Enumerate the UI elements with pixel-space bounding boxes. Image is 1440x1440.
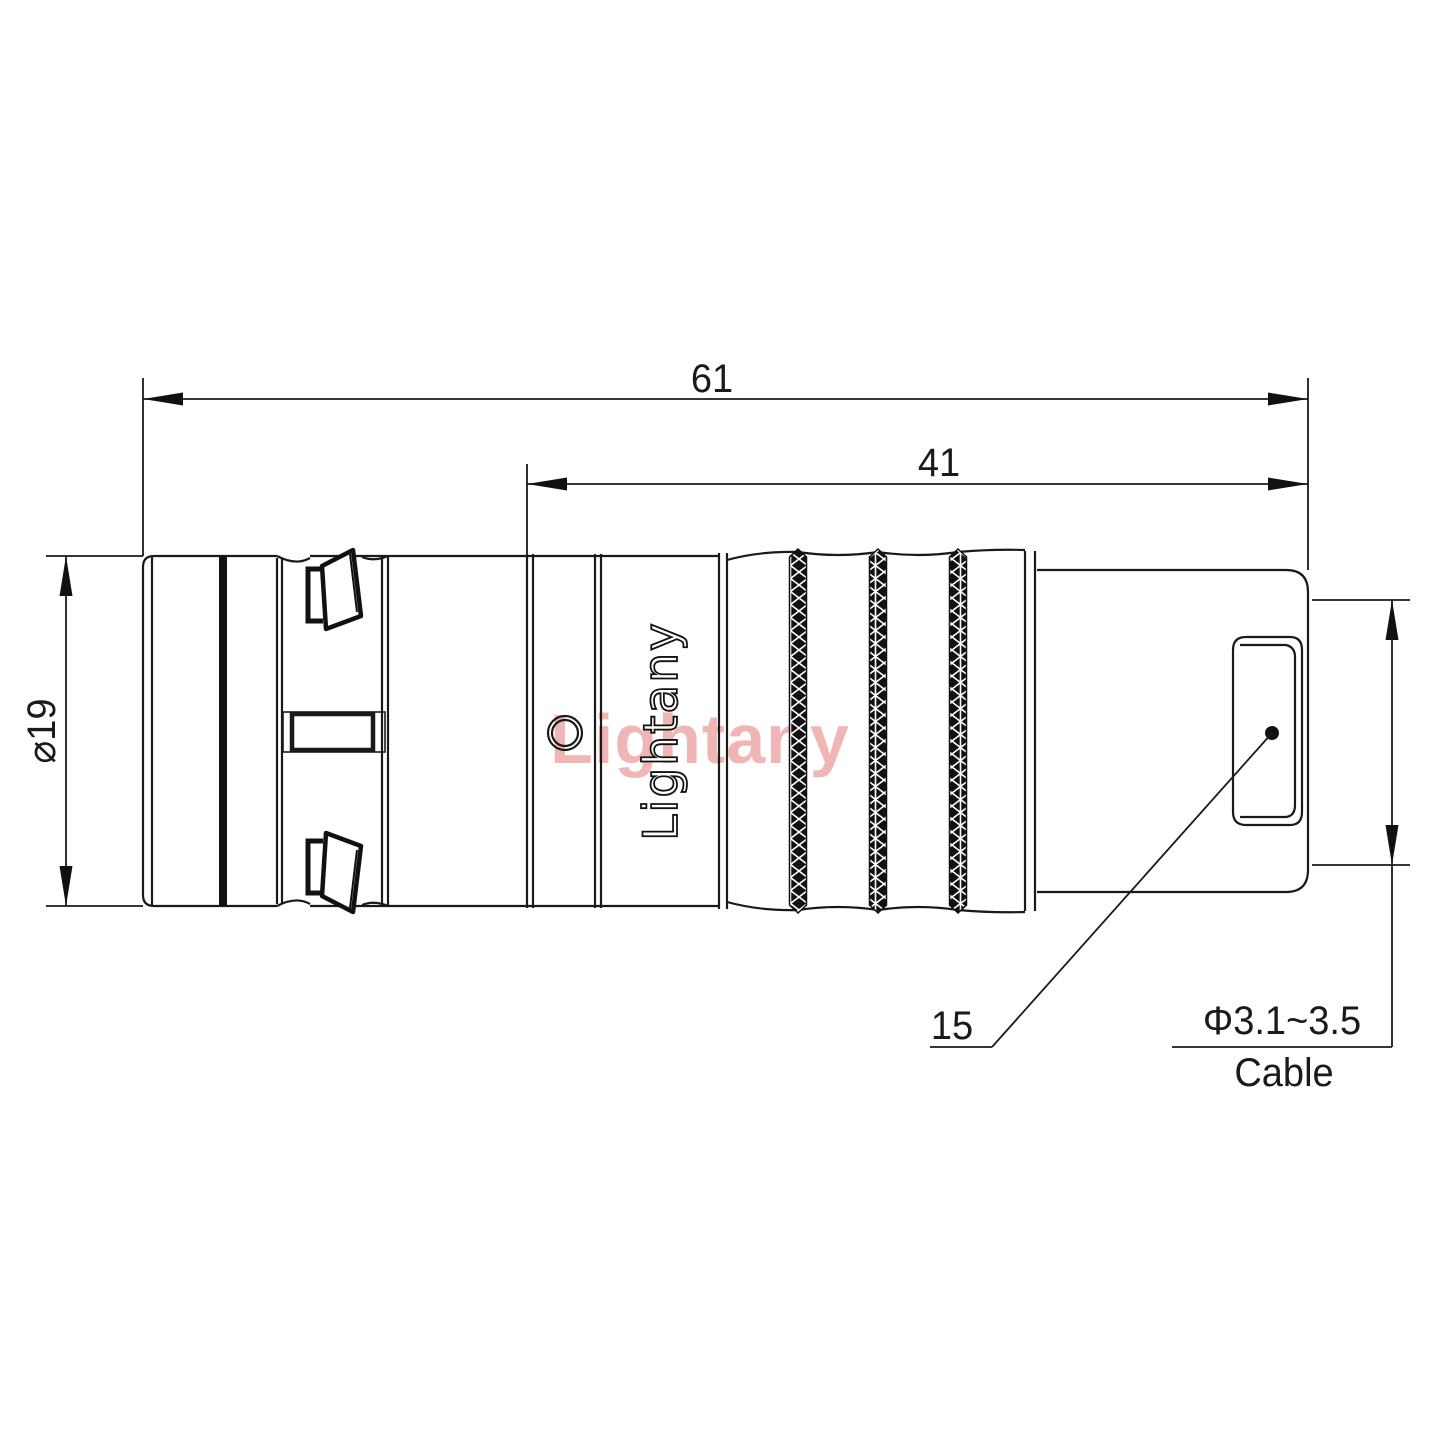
dimension-overall-length-label: 61 [691,359,733,399]
dimension-inner-length-label: 41 [918,443,960,483]
dimension-rear-length-label: 15 [931,1006,973,1046]
dimension-body-diameter-label: ⌀19 [22,698,62,763]
cable-word-label: Cable [1234,1053,1333,1093]
technical-drawing-page: Lightany [0,0,1440,1440]
connector-drawing: Lightany [0,0,1440,1440]
brand-logo-text: Lightany [634,621,689,841]
cable-diameter-label: Φ3.1~3.5 [1203,1001,1361,1041]
